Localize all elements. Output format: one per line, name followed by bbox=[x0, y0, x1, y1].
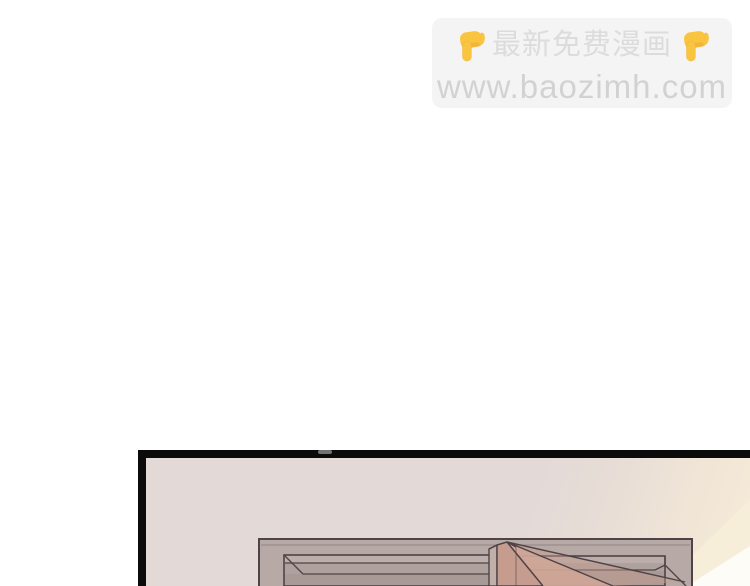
reader-page: { "watermark": { "title": "最新免费漫画", "url… bbox=[0, 0, 750, 586]
border-smudge bbox=[318, 450, 332, 454]
comic-panel bbox=[138, 450, 750, 586]
watermark-url: www.baozimh.com bbox=[437, 70, 727, 103]
watermark-title: 最新免费漫画 bbox=[492, 31, 672, 60]
watermark-banner: 最新免费漫画 www.baozimh.com bbox=[432, 18, 732, 108]
door-left-panel bbox=[284, 555, 492, 586]
pointing-down-icon bbox=[453, 29, 487, 63]
watermark-title-row: 最新免费漫画 bbox=[453, 24, 711, 68]
pointing-down-icon bbox=[677, 29, 711, 63]
room-illustration bbox=[146, 458, 750, 586]
